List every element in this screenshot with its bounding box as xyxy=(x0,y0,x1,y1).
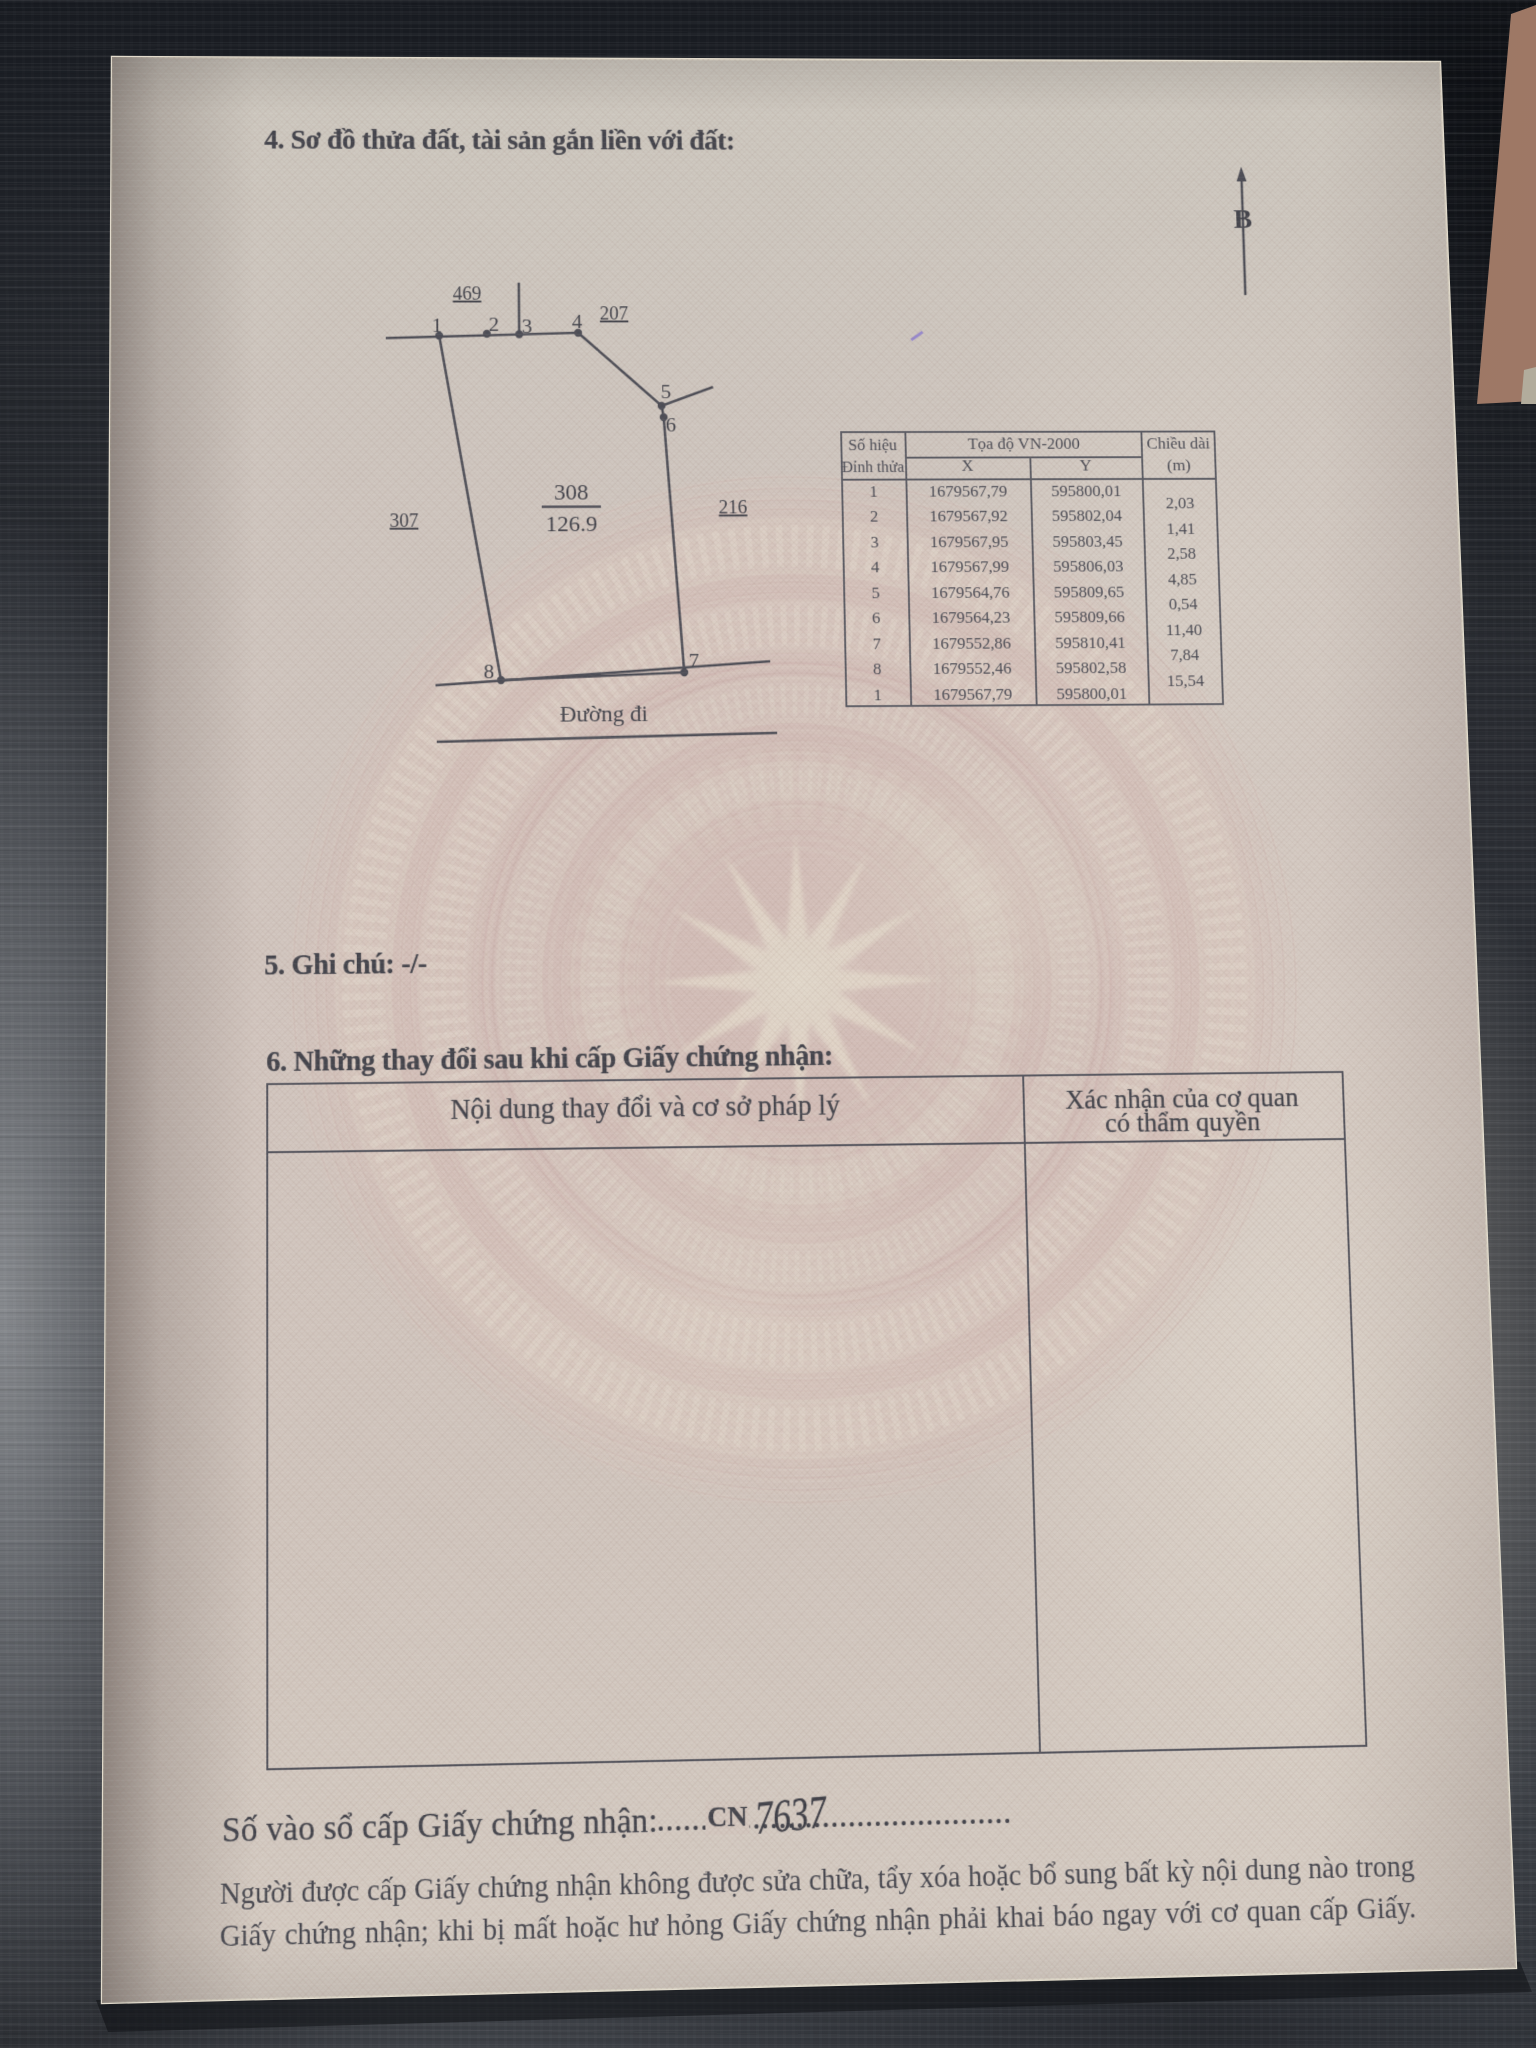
svg-text:B: B xyxy=(1233,204,1253,235)
svg-text:3: 3 xyxy=(522,314,533,337)
svg-text:5: 5 xyxy=(661,380,672,403)
svg-text:207: 207 xyxy=(600,304,629,325)
svg-text:Đường đi: Đường đi xyxy=(560,700,648,726)
svg-text:216: 216 xyxy=(719,497,748,518)
svg-text:469: 469 xyxy=(453,284,482,305)
svg-text:2: 2 xyxy=(489,312,500,335)
svg-text:126.9: 126.9 xyxy=(546,511,598,537)
svg-text:1: 1 xyxy=(432,313,443,336)
svg-text:7: 7 xyxy=(689,649,700,673)
svg-text:6: 6 xyxy=(666,413,677,436)
svg-text:307: 307 xyxy=(390,510,419,531)
svg-text:8: 8 xyxy=(484,660,495,684)
svg-text:4: 4 xyxy=(572,311,583,334)
svg-text:308: 308 xyxy=(554,479,589,504)
